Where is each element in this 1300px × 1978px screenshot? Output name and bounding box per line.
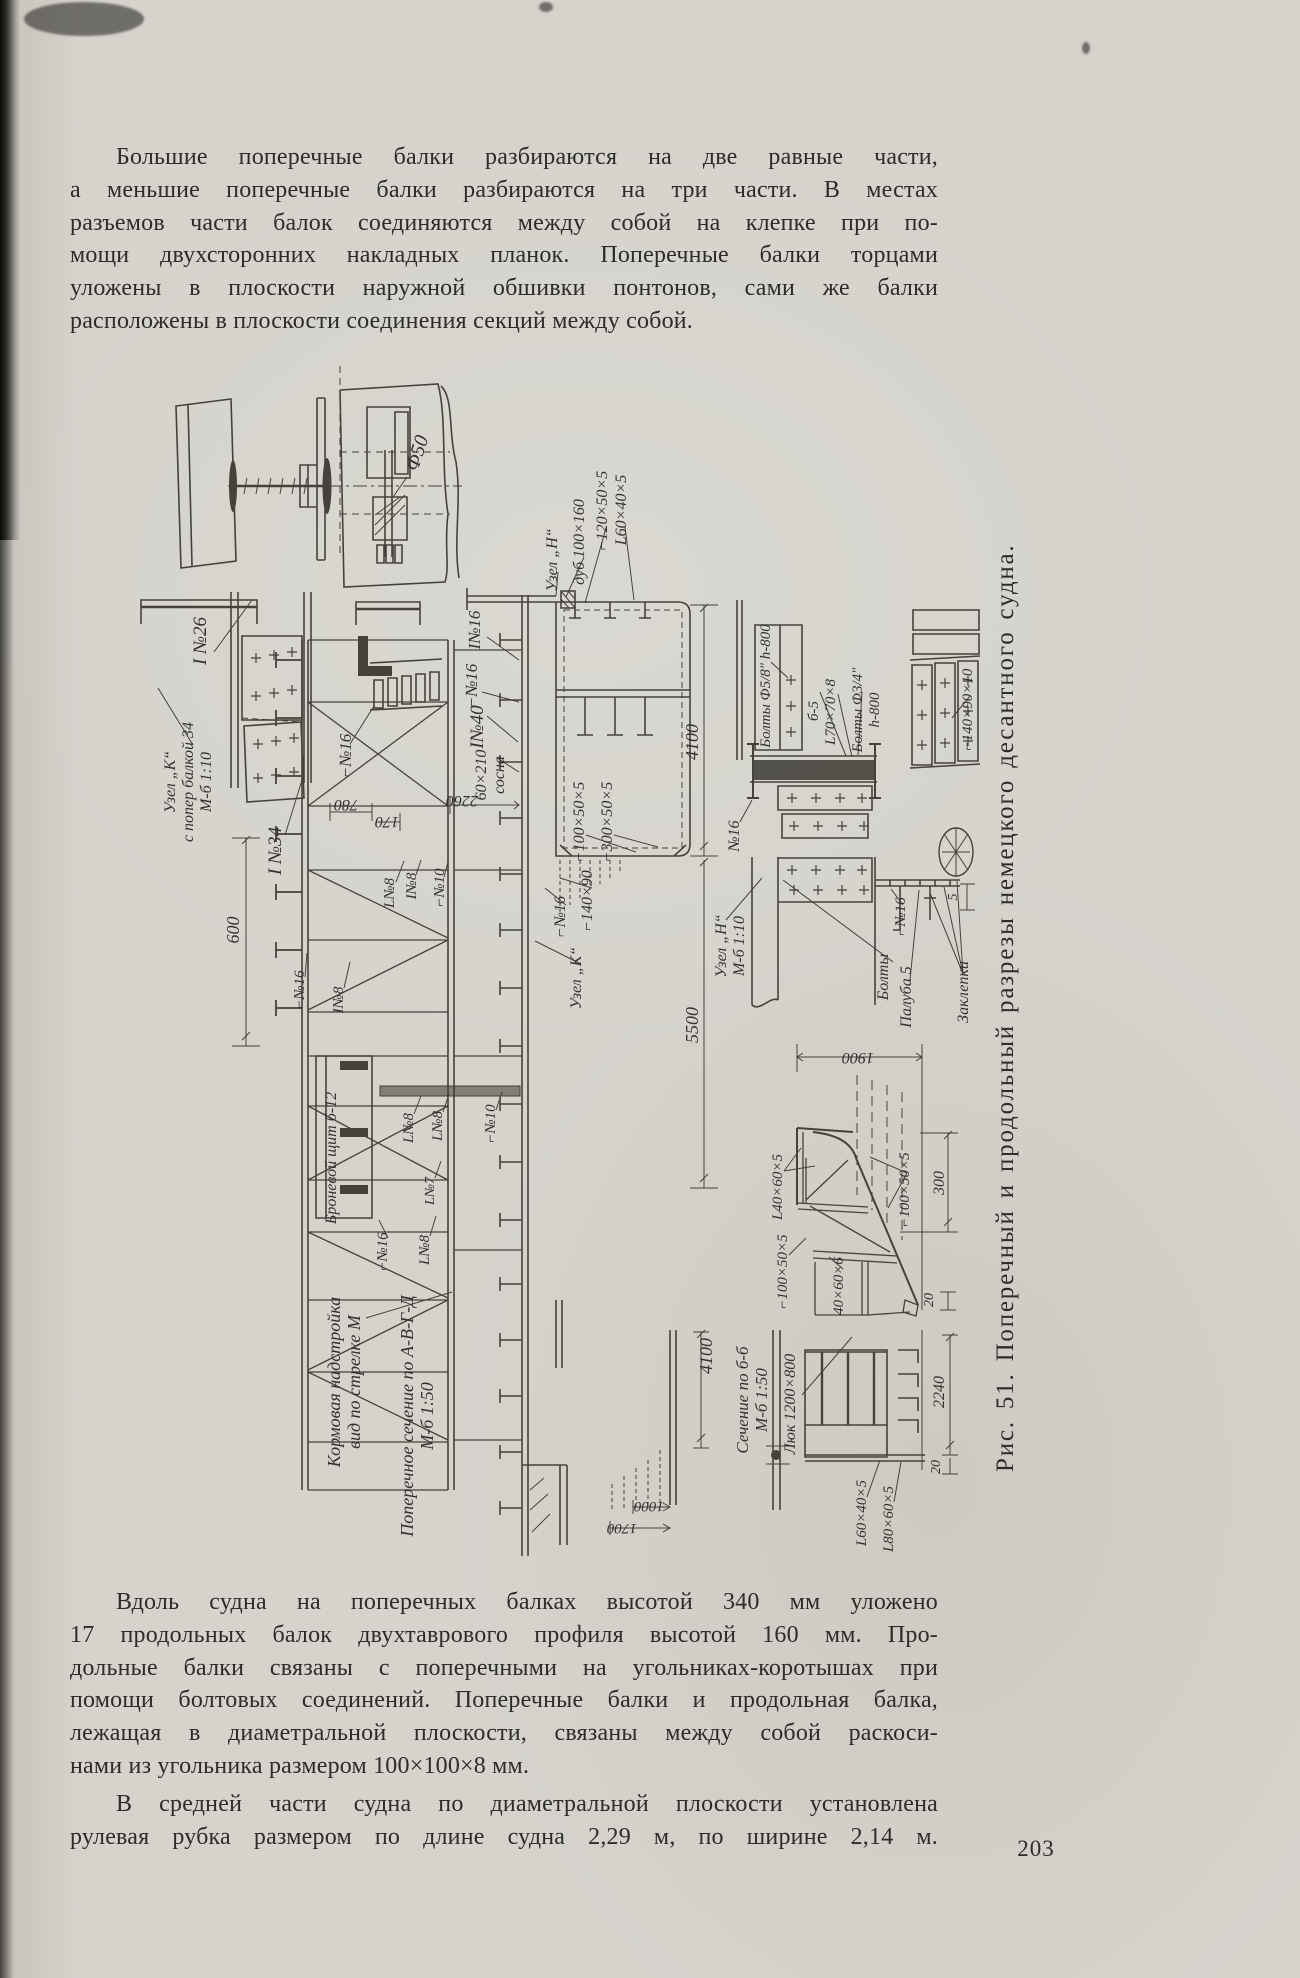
figure-label: б-5 — [806, 700, 822, 721]
figure-label: Люк 1200×800 — [782, 1354, 799, 1455]
figure-label: I№16 — [465, 610, 484, 650]
figure-label: 780 — [334, 796, 358, 813]
paragraph-bottom: В средней части судна по диаметральной п… — [70, 1788, 938, 1854]
figure-label: ⌐№10 — [483, 1104, 499, 1144]
figure-label: I №26 — [190, 617, 211, 666]
figure-label: 600 — [223, 917, 243, 944]
figure-label: L40×60×5 — [770, 1153, 786, 1221]
figure-label: 20 — [929, 1460, 944, 1474]
figure-label: ⌐120×50×5 — [594, 471, 611, 551]
figure-label: 1700 — [607, 1520, 638, 1536]
figure-label: Заклепки — [955, 961, 972, 1023]
scanned-book-page: Большие поперечные балки разбираются на … — [0, 0, 1300, 1978]
figure-label: L№7 — [423, 1176, 438, 1206]
paragraph-top: Большие поперечные балки разбираются на … — [70, 141, 938, 338]
figure-label: 1000 — [634, 1498, 665, 1514]
figure-label: дуб 100×160 — [571, 499, 588, 585]
figure-label: №16 — [726, 820, 743, 852]
text-line: Большие поперечные балки разбираются на … — [70, 141, 938, 174]
text-line: нами из угольника размером 100×100×8 мм. — [70, 1750, 938, 1783]
figure-label: 40×60×6 — [831, 1257, 847, 1315]
figure-label: ⌐100×50×5 — [571, 782, 588, 862]
figure-label: ⌐№16 — [375, 1232, 391, 1272]
figure-label: 5500 — [682, 1007, 702, 1043]
text-line: 17 продольных балок двухтаврового профил… — [70, 1619, 938, 1652]
text-line: а меньшие поперечные балки разбираются н… — [70, 174, 938, 207]
figure-label: L№8 — [382, 878, 398, 909]
figure-label: Кормовая надстройкавид по стрелке М — [324, 1297, 364, 1468]
figure-label: Болты — [875, 954, 892, 1002]
figure-label: I №34 — [265, 827, 286, 876]
text-line: рулевая рубка размером по длине судна 2,… — [70, 1821, 938, 1854]
figure-label: ⌐№16 — [292, 970, 308, 1010]
figure-label: ⌐140×90 — [579, 870, 596, 932]
figure-label: 4100 — [696, 1338, 716, 1374]
figure-label: ⌐№16 — [462, 663, 481, 708]
text-line: дольные балки связаны с поперечными на у… — [70, 1652, 938, 1685]
figure-label: 5 — [946, 894, 961, 901]
figure-label: 170 — [375, 813, 399, 830]
figure-label: ⌐300×50×5 — [599, 782, 616, 862]
scan-smudge — [1082, 42, 1090, 54]
figure-label: 60×210сосна — [473, 750, 508, 801]
figure-label: Узел „Н“ — [544, 528, 561, 591]
figure-label: L60×40×5 — [854, 1479, 870, 1547]
figure-label: Ф50 — [401, 433, 433, 474]
figure-label: L80×60×5 — [881, 1485, 897, 1553]
text-line: В средней части судна по диаметральной п… — [70, 1788, 938, 1821]
figure-label: I№8 — [404, 872, 420, 900]
figure-label: ⌐100×50×5 — [897, 1152, 913, 1228]
figure-label: ⌐№10 — [432, 868, 448, 908]
figure-label: Болты Ф3/4″h-800 — [850, 667, 883, 753]
figure-label: L70×70×8 — [823, 678, 839, 746]
text-line: мощи двухсторонних накладных планок. Поп… — [70, 239, 938, 272]
figure-label: 4100 — [682, 724, 702, 760]
figure-label: Узел „Н“М-б 1:10 — [713, 914, 748, 977]
paragraph-middle: Вдоль судна на поперечных балках высотой… — [70, 1586, 938, 1783]
text-line: уложены в плоскости наружной обшивки пон… — [70, 272, 938, 305]
figure-label: 1900 — [842, 1049, 874, 1066]
figure-label: Палуба 5 — [898, 966, 915, 1028]
figure-label: Узел „К“ — [568, 947, 585, 1009]
figure-label: L№8 — [417, 1235, 433, 1266]
figure-label: ⌐№16 — [893, 897, 909, 937]
text-line: лежащая в диаметральной плоскости, связа… — [70, 1717, 938, 1750]
figure-label: Узел „К“с попер балкой 34М-б 1:10 — [162, 722, 215, 842]
figure-label: 300 — [931, 1171, 948, 1196]
figure-label: 2240 — [931, 1376, 948, 1408]
page-edge-shadow-top — [0, 0, 20, 540]
figure-label: L№8 — [430, 1111, 446, 1142]
figure-caption-text: Рис. 51. Поперечный и продольный разрезы… — [992, 544, 1020, 1472]
scan-smudge — [24, 2, 144, 36]
figure-label: Броневой щит б-12 — [323, 1092, 340, 1225]
scan-smudge — [539, 2, 553, 12]
figure-label: L№8 — [401, 1113, 417, 1144]
figure-label: ⌐№16 — [336, 733, 355, 778]
figure-label: Болты Ф5/8″ h-800 — [758, 624, 774, 749]
figure-label: Сечение по б-бМ-б 1:50 — [733, 1346, 771, 1454]
figure-label: I№40 — [467, 705, 488, 750]
figure-label: I№8 — [331, 986, 347, 1014]
text-line: Вдоль судна на поперечных балках высотой… — [70, 1586, 938, 1619]
figure-label: L60×40×5 — [613, 475, 630, 547]
figure-label: 20 — [922, 1293, 937, 1307]
figure-label: ⌐№16 — [552, 896, 569, 938]
figure-51-technical-drawing: Ф50I №26Узел „К“с попер балкой 34М-б 1:1… — [120, 320, 1000, 1570]
figure-label: Поперечное сечение по А-В-Г-ДМ-б 1:50 — [397, 1294, 437, 1538]
text-line: разъемов части балок соединяются между с… — [70, 207, 938, 240]
figure-label: ⌐140×90×10 — [960, 668, 976, 751]
text-line: помощи болтовых соединений. Поперечные б… — [70, 1684, 938, 1717]
page-number: 203 — [990, 1836, 1082, 1862]
figure-label: ⌐100×50×5 — [775, 1234, 791, 1310]
